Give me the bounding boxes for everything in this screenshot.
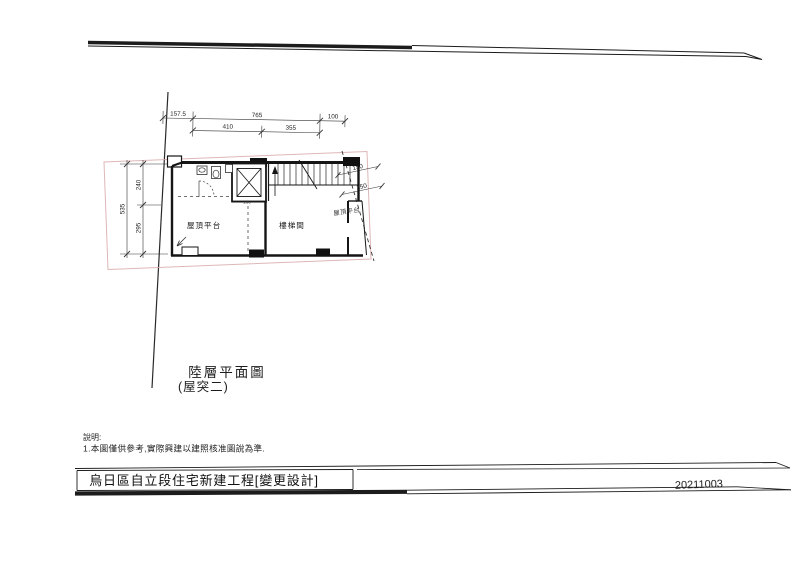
room-label-roof-platform: 屋頂平台 (187, 220, 221, 230)
wall-opening-scupper (182, 247, 198, 256)
elevator-shaft: 160 (232, 164, 266, 205)
stairs (269, 160, 359, 201)
scanned-drawing-page: 157.5 765 100 410 355 535 240 295 150 (0, 0, 800, 565)
drawing-subtitle: (屋突二) (178, 379, 229, 394)
dim-100: 100 (328, 113, 339, 120)
dim-240: 240 (136, 179, 143, 190)
right-dimension-lines: 150 150 (336, 151, 385, 261)
corner-arrow (177, 237, 186, 246)
room-label-stairwell: 樓梯間 (279, 220, 305, 230)
top-page-border (88, 43, 762, 60)
project-title: 烏日區自立段住宅新建工程[變更設計] (89, 473, 319, 488)
room-label-roof-platform-right: 屋頂平台 (333, 206, 361, 218)
dim-elevator-160: 160 (243, 200, 251, 205)
notes-heading: 說明: (83, 432, 101, 442)
left-dimension-lines: 535 240 295 (120, 160, 169, 258)
dim-535: 535 (120, 203, 127, 214)
notes-line-1: 1.本圖僅供參考,實際興建以建照核准圖說為準. (83, 443, 265, 454)
dim-295: 295 (136, 222, 143, 233)
title-block: 烏日區自立段住宅新建工程[變更設計] 20211003 (75, 463, 791, 494)
dim-355: 355 (286, 125, 297, 132)
door-swing (199, 181, 214, 197)
dim-410: 410 (223, 124, 234, 131)
date-stamp: 20211003 (675, 478, 724, 492)
fixtures (197, 165, 233, 179)
counter-fixture (226, 165, 233, 173)
dim-765: 765 (252, 112, 263, 119)
floor-plan-sheet: 157.5 765 100 410 355 535 240 295 150 (0, 0, 800, 565)
drawing-title: 陸層平面圖 (188, 365, 266, 380)
site-boundary-line (152, 92, 168, 388)
dim-157-5: 157.5 (170, 111, 186, 118)
top-dimension-lines: 157.5 765 100 410 355 (160, 110, 348, 139)
